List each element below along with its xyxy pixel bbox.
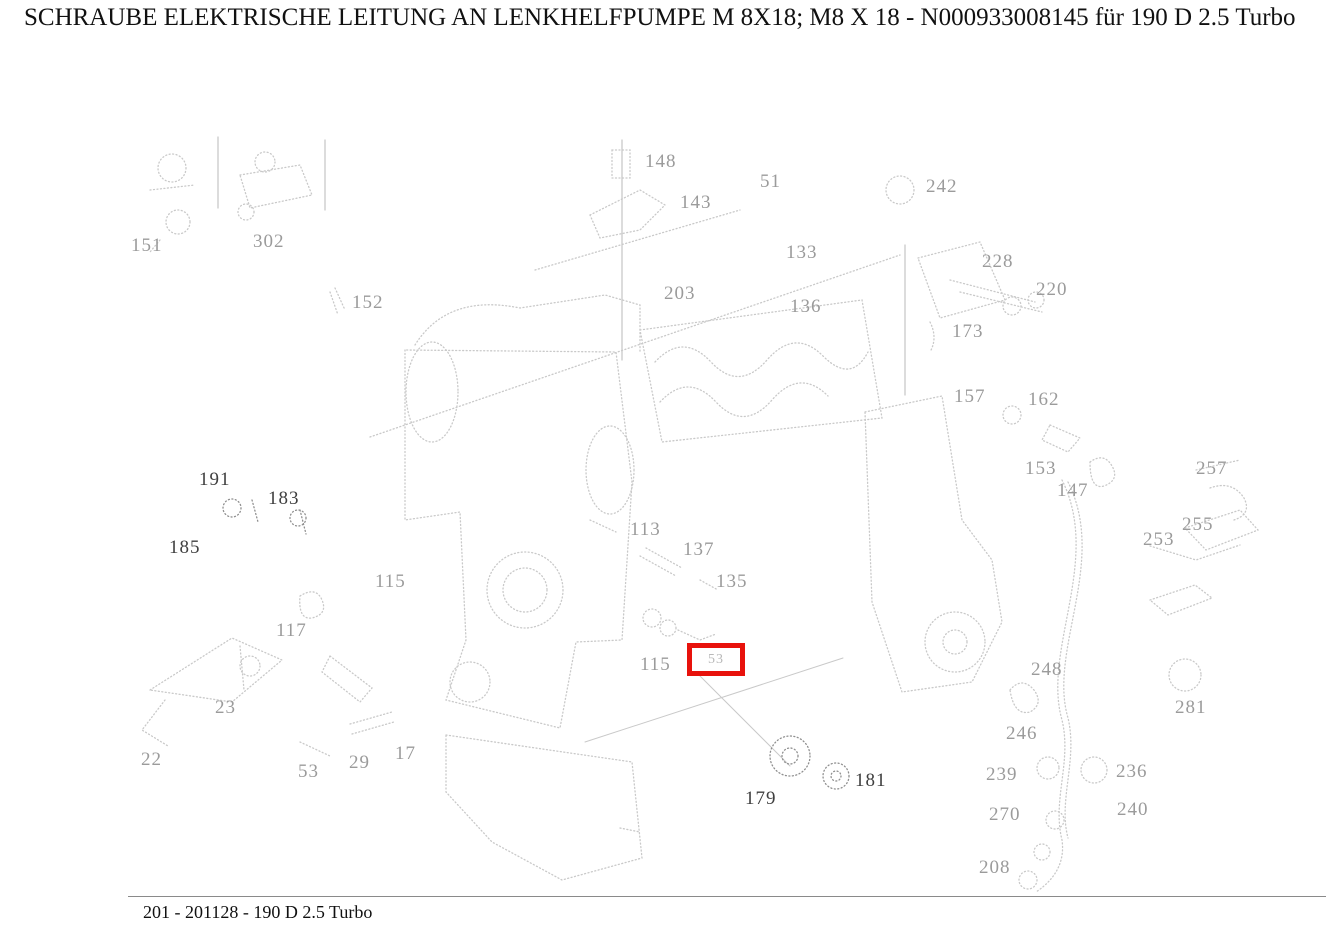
part-callout-151[interactable]: 151 <box>131 236 163 255</box>
part-callout-137[interactable]: 137 <box>683 540 715 559</box>
parts-catalog-page: SCHRAUBE ELEKTRISCHE LEITUNG AN LENKHELF… <box>0 0 1326 938</box>
part-callout-148[interactable]: 148 <box>645 152 677 171</box>
part-callout-115[interactable]: 115 <box>375 572 406 591</box>
part-callout-23[interactable]: 23 <box>215 698 236 717</box>
part-callout-153[interactable]: 153 <box>1025 459 1057 478</box>
part-callout-228[interactable]: 228 <box>982 252 1014 271</box>
part-callout-135[interactable]: 135 <box>716 572 748 591</box>
part-callout-115[interactable]: 115 <box>640 655 671 674</box>
part-callout-239[interactable]: 239 <box>986 765 1018 784</box>
part-callout-162[interactable]: 162 <box>1028 390 1060 409</box>
part-callout-143[interactable]: 143 <box>680 193 712 212</box>
part-callout-253[interactable]: 253 <box>1143 530 1175 549</box>
part-callout-179[interactable]: 179 <box>745 789 777 808</box>
highlighted-part-number[interactable]: 53 <box>708 652 724 668</box>
part-callout-185[interactable]: 185 <box>169 538 201 557</box>
part-callout-183[interactable]: 183 <box>268 489 300 508</box>
part-callout-152[interactable]: 152 <box>352 293 384 312</box>
part-callout-255[interactable]: 255 <box>1182 515 1214 534</box>
part-callout-136[interactable]: 136 <box>790 297 822 316</box>
part-callout-157[interactable]: 157 <box>954 387 986 406</box>
footer-divider <box>128 896 1326 897</box>
part-callout-181[interactable]: 181 <box>855 771 887 790</box>
part-callout-302[interactable]: 302 <box>253 232 285 251</box>
part-callout-257[interactable]: 257 <box>1196 459 1228 478</box>
part-callout-53[interactable]: 53 <box>298 762 319 781</box>
part-callout-17[interactable]: 17 <box>395 744 416 763</box>
part-callout-113[interactable]: 113 <box>630 520 661 539</box>
highlight-box[interactable]: 53 <box>687 643 745 676</box>
footer-caption: 201 - 201128 - 190 D 2.5 Turbo <box>143 902 372 923</box>
part-callout-281[interactable]: 281 <box>1175 698 1207 717</box>
part-callout-220[interactable]: 220 <box>1036 280 1068 299</box>
part-callout-51[interactable]: 51 <box>760 172 781 191</box>
part-callout-208[interactable]: 208 <box>979 858 1011 877</box>
part-callout-147[interactable]: 147 <box>1057 481 1089 500</box>
part-callout-270[interactable]: 270 <box>989 805 1021 824</box>
part-callout-242[interactable]: 242 <box>926 177 958 196</box>
part-callout-240[interactable]: 240 <box>1117 800 1149 819</box>
part-callout-203[interactable]: 203 <box>664 284 696 303</box>
part-callout-173[interactable]: 173 <box>952 322 984 341</box>
part-callout-236[interactable]: 236 <box>1116 762 1148 781</box>
part-callout-246[interactable]: 246 <box>1006 724 1038 743</box>
part-callout-133[interactable]: 133 <box>786 243 818 262</box>
part-callout-29[interactable]: 29 <box>349 753 370 772</box>
part-callout-191[interactable]: 191 <box>199 470 231 489</box>
part-callout-117[interactable]: 117 <box>276 621 307 640</box>
part-callout-22[interactable]: 22 <box>141 750 162 769</box>
part-callout-248[interactable]: 248 <box>1031 660 1063 679</box>
